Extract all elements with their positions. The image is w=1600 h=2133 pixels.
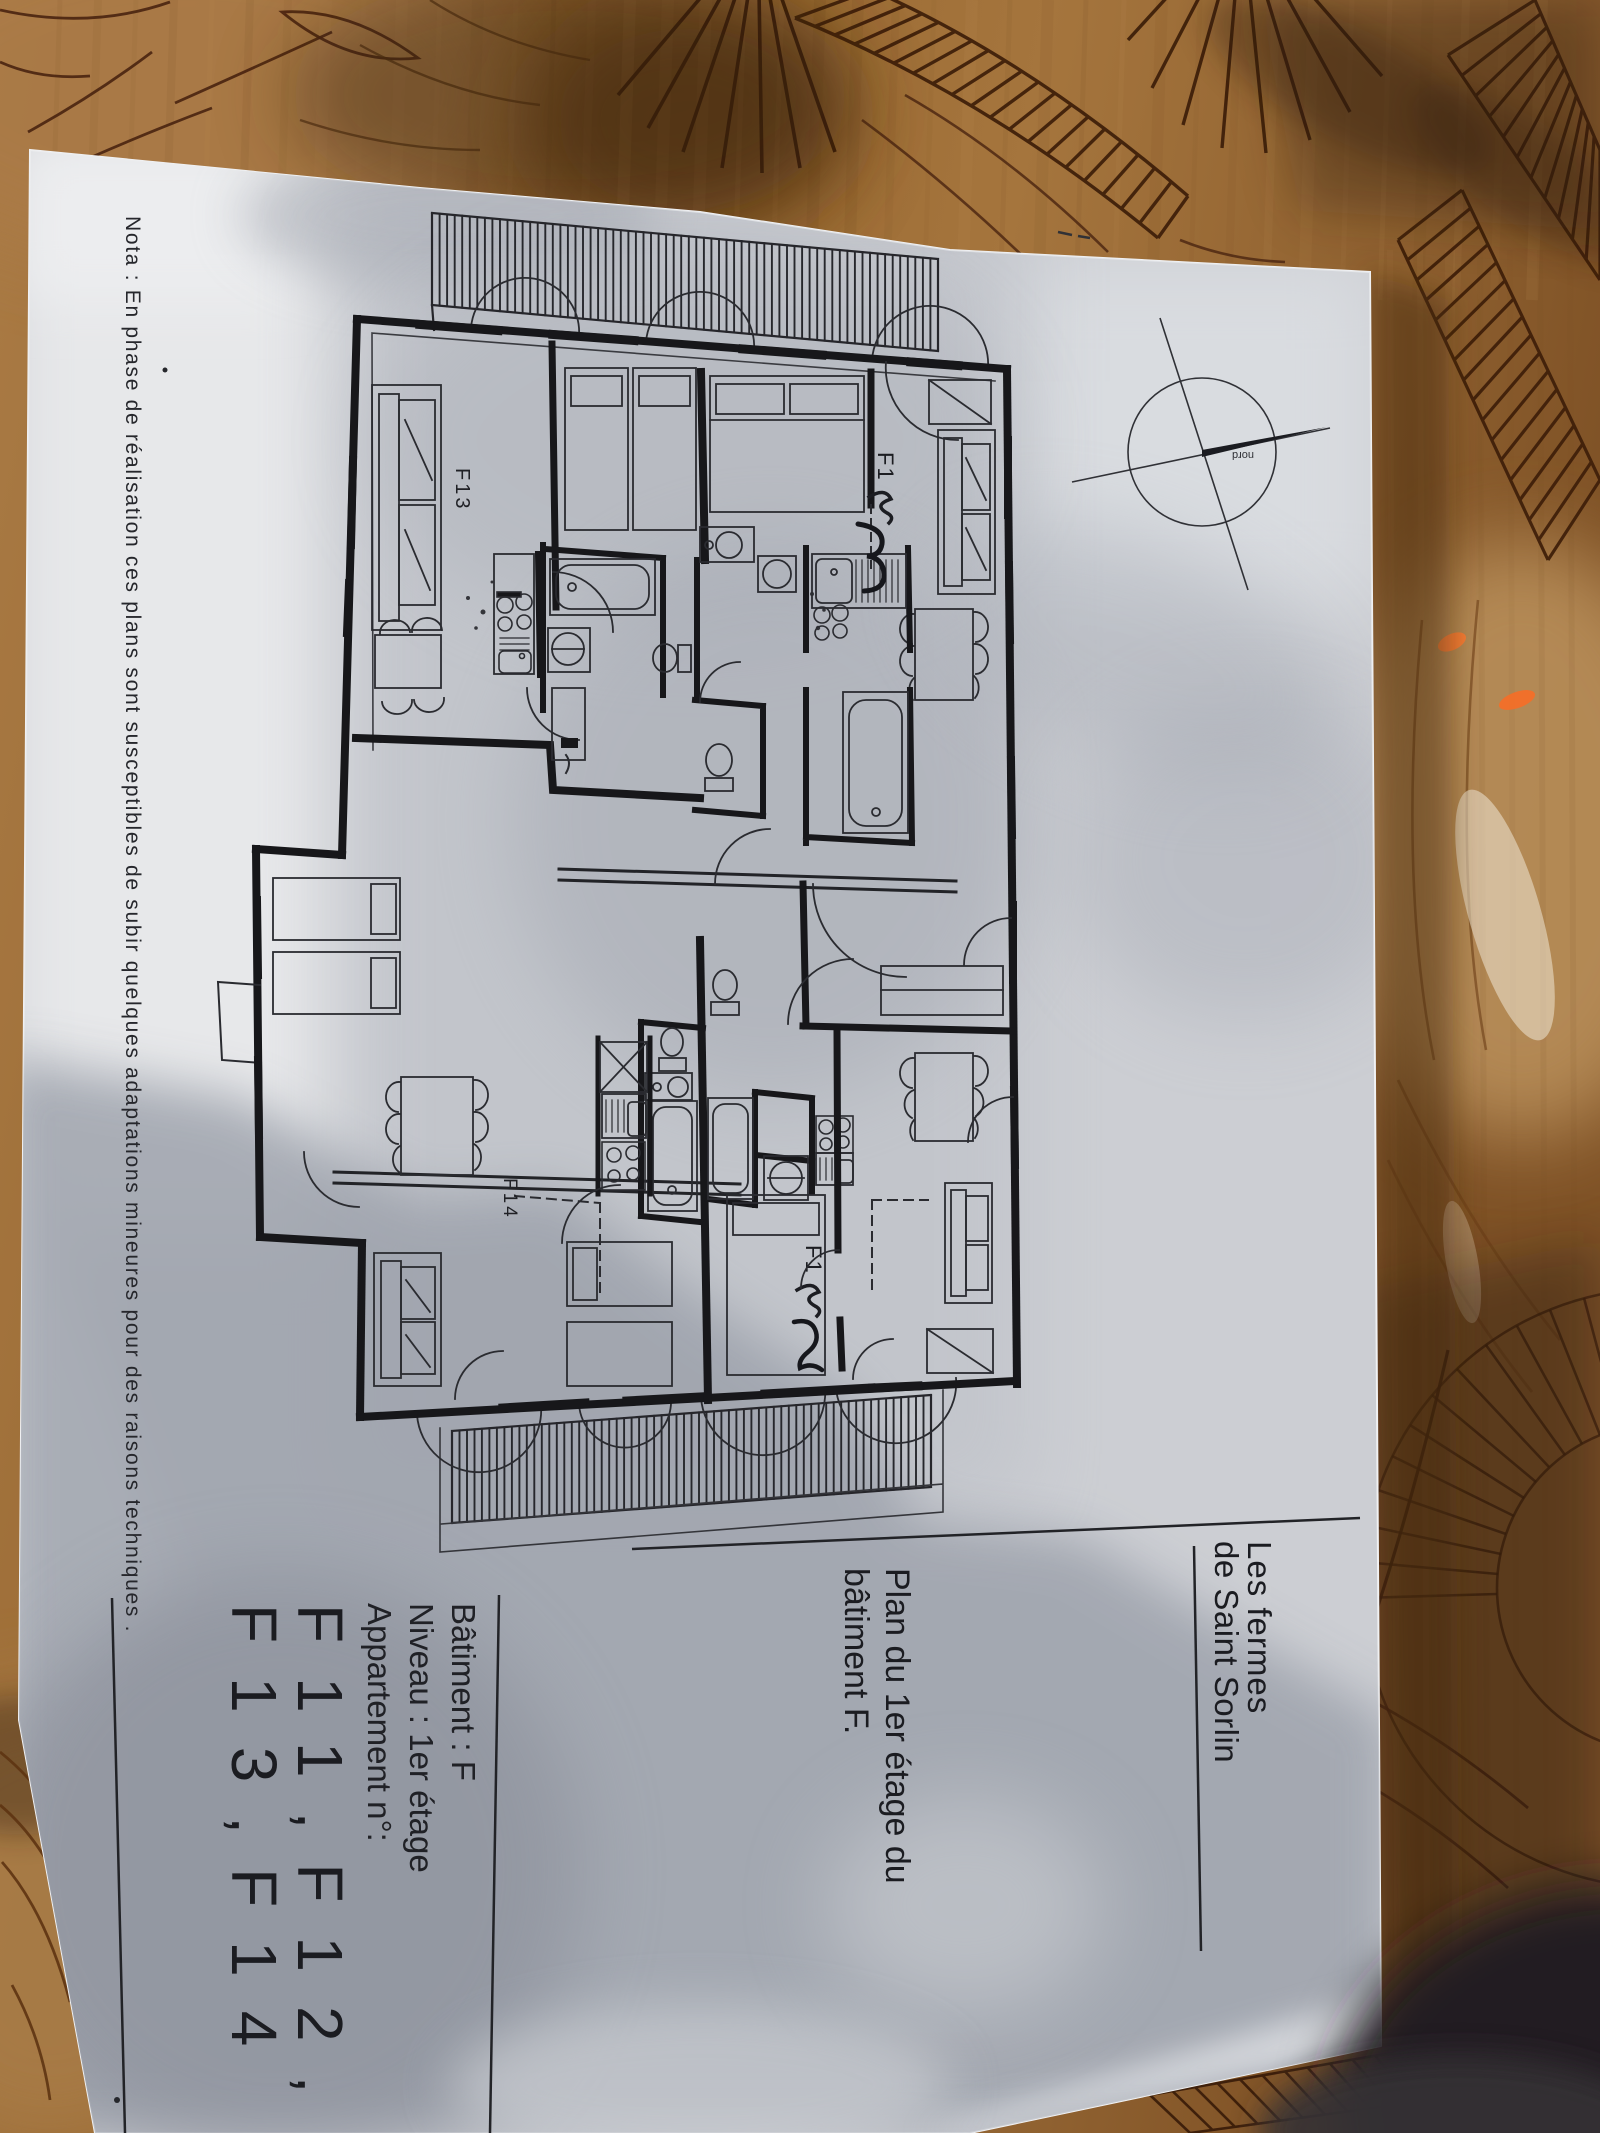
- svg-text:Appartement n°:: Appartement n°:: [361, 1603, 398, 1842]
- svg-text:bâtiment F.: bâtiment F.: [837, 1568, 875, 1734]
- svg-text:de Saint Sorlin: de Saint Sorlin: [1208, 1541, 1245, 1763]
- svg-text:F1: F1: [873, 452, 898, 482]
- svg-text:Nota : En phase de réalisation: Nota : En phase de réalisation ces plans…: [121, 216, 144, 1633]
- svg-text:F11,F12,: F11,F12,: [284, 1604, 356, 2127]
- svg-text:Les fermes: Les fermes: [1241, 1541, 1278, 1714]
- svg-text:Bâtiment : F: Bâtiment : F: [445, 1603, 482, 1781]
- svg-text:F13,F14: F13,F14: [218, 1604, 290, 2080]
- svg-text:Plan du 1er étage du: Plan du 1er étage du: [878, 1568, 916, 1884]
- svg-text:F14: F14: [499, 1178, 520, 1220]
- svg-text:nord: nord: [1232, 449, 1254, 461]
- svg-text:Niveau : 1er étage: Niveau : 1er étage: [403, 1603, 440, 1873]
- svg-text:F13: F13: [451, 468, 473, 511]
